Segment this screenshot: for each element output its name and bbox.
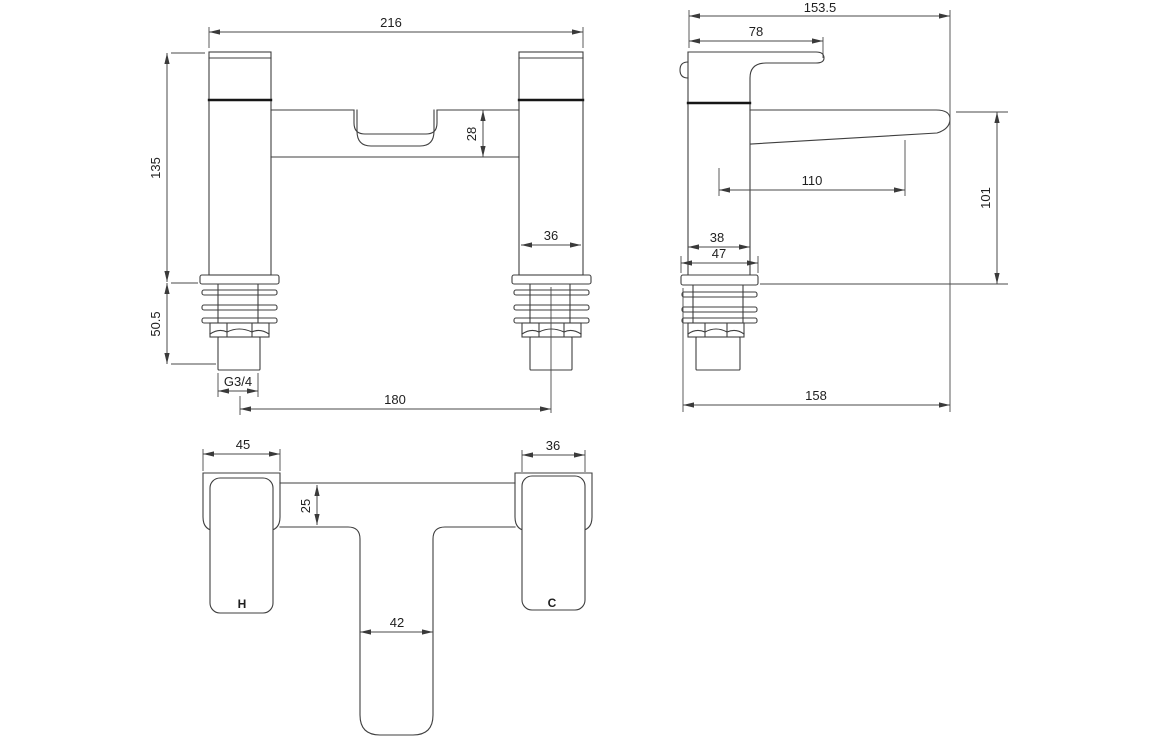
side-spout (750, 110, 950, 144)
dim-front-spout-drop: 28 (464, 127, 479, 141)
ext-lines-153-5 (689, 10, 950, 412)
side-mounting (681, 275, 758, 370)
front-left-mounting (200, 275, 279, 370)
front-right-mounting (512, 275, 591, 370)
ext-lines-216 (209, 27, 583, 48)
flange (200, 275, 279, 284)
ext-lines-45 (203, 449, 280, 471)
dim-plan-body-width: 25 (298, 499, 313, 513)
hot-label: H (238, 597, 247, 611)
hex-nut-chamfer (688, 329, 744, 334)
plan-view: H C 45 36 25 42 (203, 437, 592, 735)
dim-front-tail-length: 50.5 (148, 311, 163, 336)
cold-label: C (548, 596, 557, 610)
ext-lines-135 (171, 53, 205, 283)
front-left-pillar (209, 52, 271, 275)
flange (512, 275, 591, 284)
dim-front-height: 135 (148, 157, 163, 179)
dim-front-pillar-width: 36 (544, 228, 558, 243)
front-spout-lip (357, 110, 434, 146)
plan-cold-handle (522, 476, 585, 610)
washer (514, 318, 589, 323)
plan-hot-handle (210, 478, 273, 613)
hex-nut-chamfer (522, 329, 581, 334)
dim-side-body-depth: 38 (710, 230, 724, 245)
ext-lines-36-plan (522, 450, 585, 472)
front-view: 216 135 50.5 28 36 G3/4 180 (148, 15, 591, 415)
dim-front-hole-centres: 180 (384, 392, 406, 407)
dim-side-flange-depth: 47 (712, 246, 726, 261)
side-lever-handle (688, 52, 824, 103)
dim-side-spout-reach: 110 (802, 173, 823, 188)
side-indicator-button (680, 62, 688, 78)
dim-front-thread-size: G3/4 (224, 374, 252, 389)
dim-side-overall-length: 158 (805, 388, 827, 403)
ext-lines-101 (760, 112, 1008, 284)
washer (202, 290, 277, 295)
plan-body-and-spout (280, 483, 515, 735)
technical-drawing-page: 216 135 50.5 28 36 G3/4 180 (0, 0, 1156, 742)
washer (514, 305, 589, 310)
threaded-tail (218, 337, 260, 370)
flange (681, 275, 758, 285)
stem (693, 285, 743, 323)
dim-plan-spout-width: 42 (390, 615, 404, 630)
hex-nut-chamfer (210, 329, 269, 334)
front-spout-opening (354, 110, 437, 134)
washer (514, 290, 589, 295)
side-view: 153.5 78 110 101 38 47 158 (680, 0, 1008, 412)
dim-side-outlet-height: 101 (978, 187, 993, 209)
dim-plan-hot-handle-width: 45 (236, 437, 250, 452)
dim-side-handle-reach: 78 (749, 24, 763, 39)
threaded-tail (696, 337, 740, 370)
washer (202, 318, 277, 323)
dim-front-overall-width: 216 (380, 15, 402, 30)
bath-filler-technical-drawing: 216 135 50.5 28 36 G3/4 180 (0, 0, 1156, 742)
dim-plan-cold-handle-width: 36 (546, 438, 560, 453)
washer (202, 305, 277, 310)
dim-side-overall-depth: 153.5 (804, 0, 837, 15)
